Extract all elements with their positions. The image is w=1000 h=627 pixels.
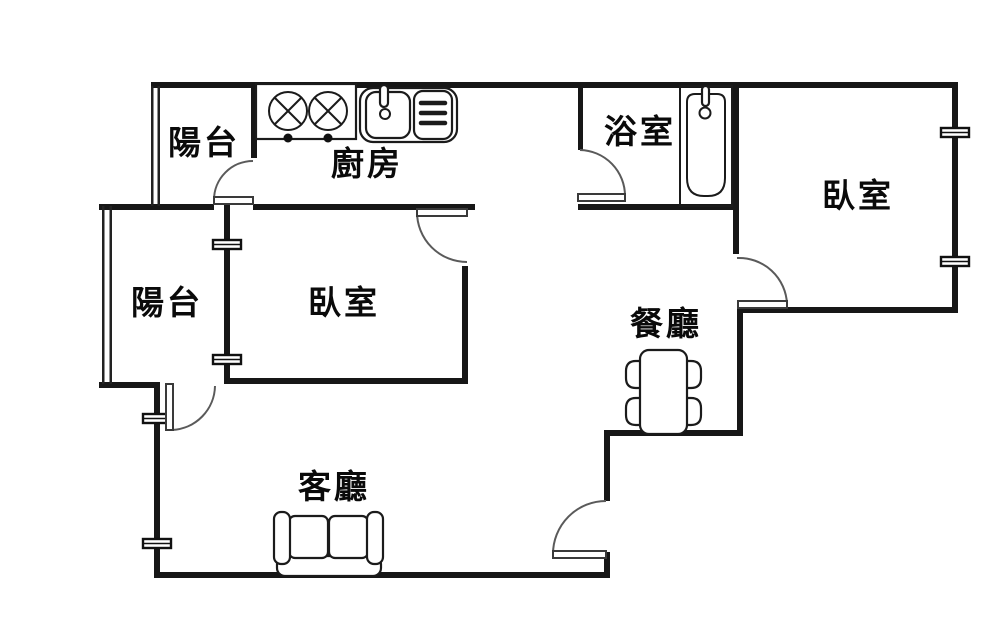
room-label-living: 客廳 [298,467,370,506]
faucet-icon [380,85,388,107]
dish-rack-icon [414,91,452,139]
table-icon [640,350,687,434]
sofa-armrest [274,512,290,564]
wall-bathroom-left [578,86,583,150]
room-label-kitchen: 廚房 [331,144,403,183]
wall-bedroom-right-left [733,82,739,254]
door-balcony-top-to-kitchen [214,161,253,204]
room-label-balcony-top: 陽台 [168,123,240,162]
door-bathroom [578,150,625,201]
kitchen-sink-icon [360,85,457,142]
doors [166,150,787,558]
window-icon [143,539,171,548]
door-leaf [214,197,253,204]
chair-icon [626,361,641,388]
floor-plan: 陽台 廚房 浴室 臥室 陽台 臥室 餐廳 客廳 [0,0,1000,627]
door-balcony-left-to-living [166,384,215,430]
door-leaf [417,209,467,216]
chair-icon [686,398,701,425]
wall-bedroom-left-right [462,266,468,384]
stove-two-burner-icon [256,84,356,143]
balcony-left-railing-wall [102,206,112,384]
sofa-cushion [329,516,368,558]
bathtub-icon [680,86,732,206]
room-label-dining: 餐廳 [630,304,702,343]
sofa-base [277,556,381,576]
chair-icon [626,398,641,425]
room-label-bedroom-left: 臥室 [308,283,380,322]
door-leaf [738,301,787,308]
balcony-top-railing-wall [151,86,160,206]
door-leaf [553,551,606,558]
window-icon [213,355,241,364]
stove-knob [284,134,293,143]
window-icon [941,128,969,137]
room-label-balcony-left: 陽台 [131,283,203,322]
window-icon [941,257,969,266]
window-icon [213,240,241,249]
wall-right [952,82,958,313]
wall-kitchen-bottom-left-segment [99,204,214,210]
room-label-bathroom: 浴室 [604,112,676,151]
door-bedroom-right [737,258,787,308]
door-leaf [166,384,173,430]
sofa-cushion [289,516,328,558]
room-label-bedroom-right: 臥室 [822,176,894,215]
sofa-armrest [367,512,383,564]
door-living-to-dining [553,501,606,558]
door-leaf [578,194,625,201]
wall-balcony-left-bottom [99,382,159,388]
drain-icon [700,108,711,119]
floor-plan-drawing: 陽台 廚房 浴室 臥室 陽台 臥室 餐廳 客廳 [0,0,1000,627]
two-seat-sofa-icon [274,512,383,576]
chair-icon [686,361,701,388]
stove-knob [324,134,333,143]
wall-dining-right [737,311,743,436]
wall-bedroom-left-bottom [224,378,468,384]
dining-table-with-four-chairs-icon [626,350,701,434]
door-kitchen-to-bedroom-left [417,209,467,262]
wall-dining-step-vertical [604,435,610,501]
faucet-icon [702,86,709,106]
